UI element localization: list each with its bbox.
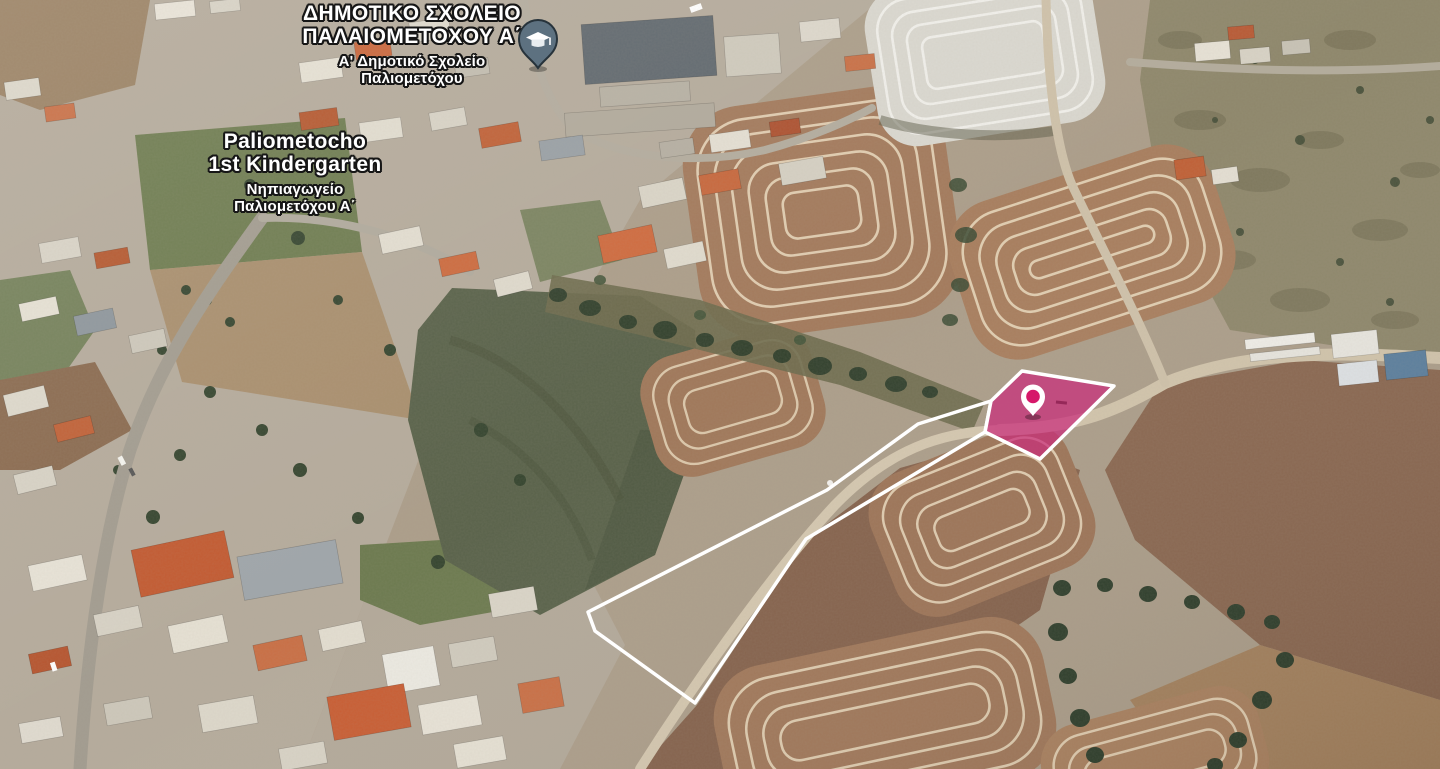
satellite-imagery	[0, 0, 1440, 769]
pin-center-dot	[1026, 390, 1040, 404]
lighting-overlay	[0, 0, 1440, 769]
map-viewport[interactable]: ΔΗΜΟΤΙΚΟ ΣΧΟΛΕΙΟ ΠΑΛΑΙΟΜΕΤΟΧΟΥ Α΄ Α' Δημ…	[0, 0, 1440, 769]
